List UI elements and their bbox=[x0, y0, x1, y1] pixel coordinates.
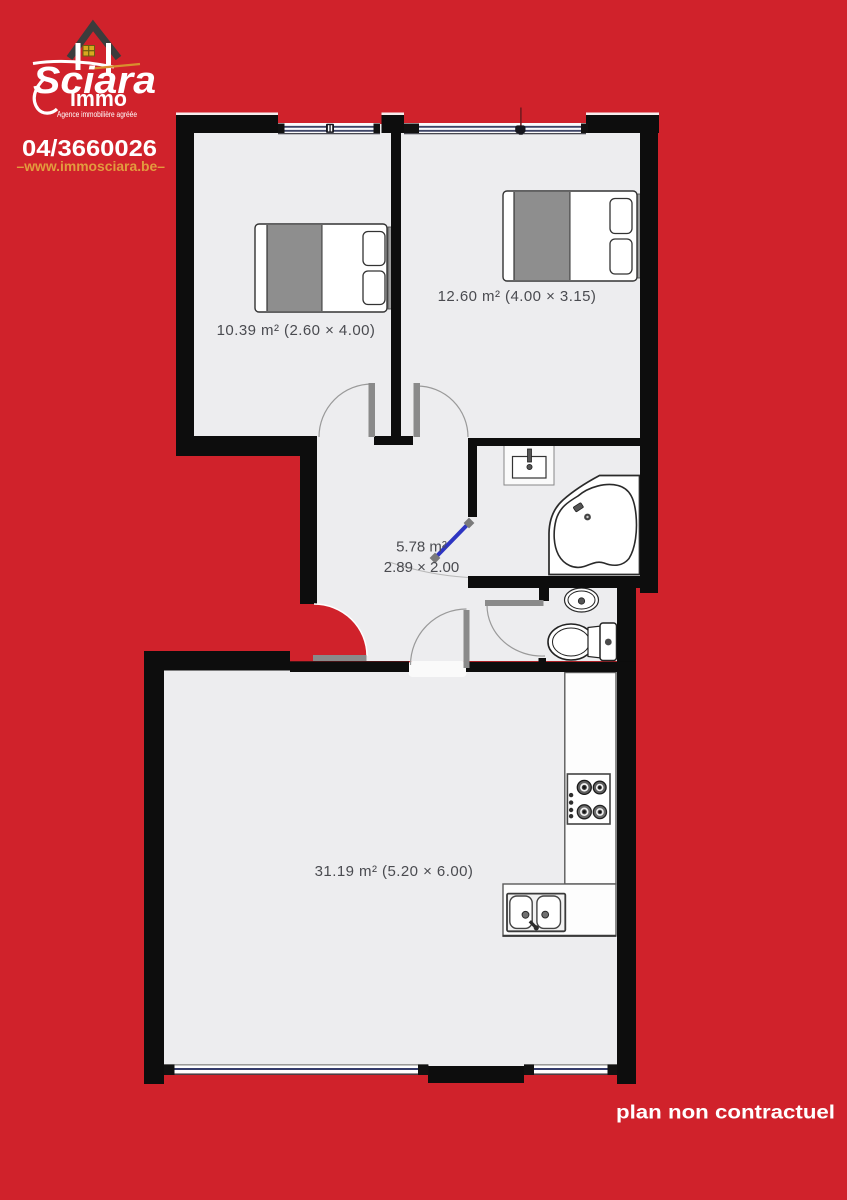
svg-text:Agence immobilière agréée: Agence immobilière agréée bbox=[57, 110, 137, 119]
svg-text:2.89 × 2.00: 2.89 × 2.00 bbox=[384, 559, 459, 576]
svg-text:12.60 m² (4.00 × 3.15): 12.60 m² (4.00 × 3.15) bbox=[438, 288, 597, 305]
svg-text:10.39 m² (2.60 × 4.00): 10.39 m² (2.60 × 4.00) bbox=[217, 322, 376, 339]
svg-text:04/3660026: 04/3660026 bbox=[22, 135, 157, 161]
svg-text:Immo: Immo bbox=[70, 86, 127, 111]
svg-text:31.19 m² (5.20 × 6.00): 31.19 m² (5.20 × 6.00) bbox=[315, 863, 474, 880]
svg-text:plan non contractuel: plan non contractuel bbox=[616, 1102, 835, 1124]
svg-text:5.78 m²: 5.78 m² bbox=[396, 539, 447, 556]
svg-text:–www.immosciara.be–: –www.immosciara.be– bbox=[17, 159, 166, 174]
